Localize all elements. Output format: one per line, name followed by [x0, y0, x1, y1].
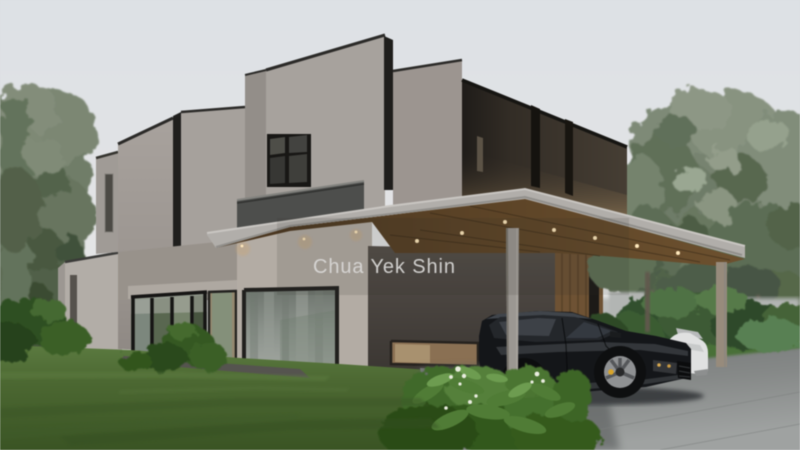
svg-text:Chua Yek Shin: Chua Yek Shin: [313, 256, 456, 278]
